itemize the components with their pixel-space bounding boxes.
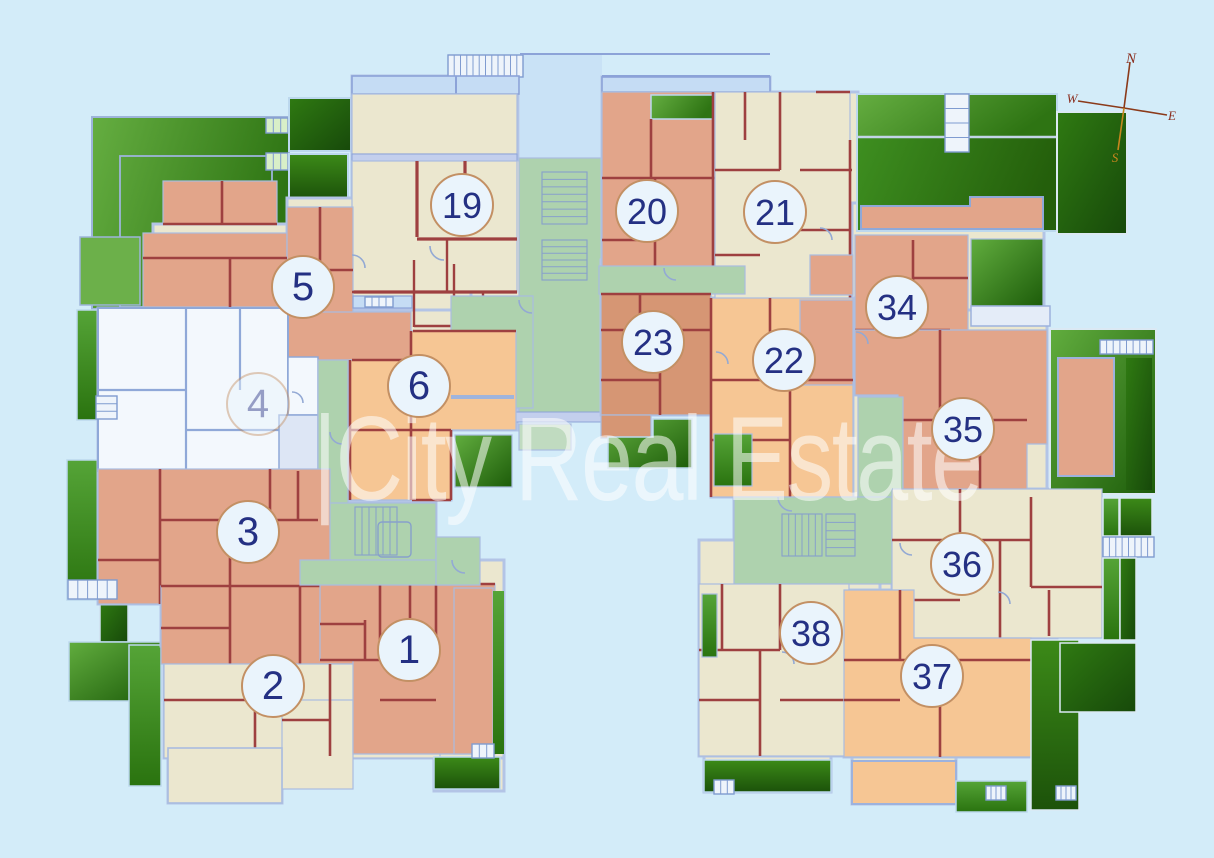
svg-text:35: 35	[943, 409, 983, 450]
svg-text:34: 34	[877, 287, 917, 328]
svg-text:22: 22	[764, 340, 804, 381]
svg-text:W: W	[1067, 91, 1079, 106]
svg-text:4: 4	[247, 382, 269, 426]
svg-text:2: 2	[262, 664, 284, 708]
svg-text:23: 23	[633, 322, 673, 363]
svg-text:20: 20	[627, 191, 667, 232]
svg-text:6: 6	[408, 364, 430, 408]
svg-text:38: 38	[791, 613, 831, 654]
svg-text:1: 1	[398, 628, 420, 672]
svg-text:N: N	[1125, 51, 1137, 67]
svg-text:5: 5	[292, 265, 314, 309]
svg-text:21: 21	[755, 192, 795, 233]
svg-text:3: 3	[237, 510, 259, 554]
svg-text:36: 36	[942, 544, 982, 585]
svg-text:19: 19	[442, 185, 482, 226]
svg-text:S: S	[1112, 150, 1119, 165]
svg-text:37: 37	[912, 656, 952, 697]
svg-text:E: E	[1167, 108, 1176, 123]
